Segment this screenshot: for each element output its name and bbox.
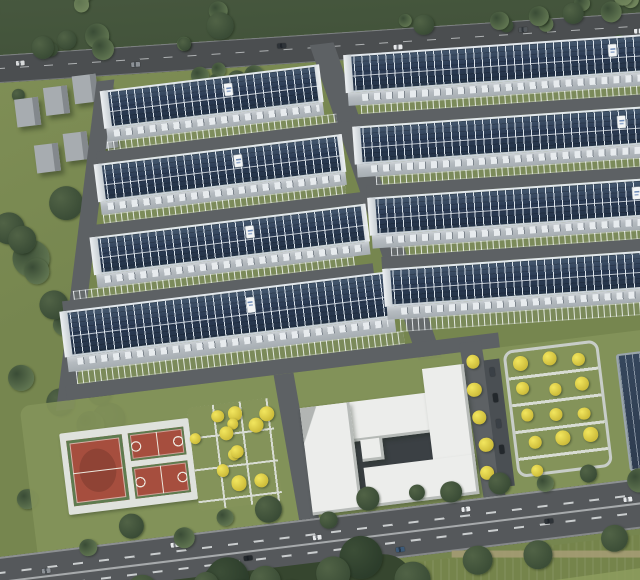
roof-label [234, 154, 243, 167]
roof-label [246, 297, 256, 313]
car [312, 535, 322, 541]
scene-world [0, 0, 640, 580]
roof-label [224, 83, 233, 96]
utility-cube [34, 143, 61, 174]
car [492, 393, 498, 403]
car [518, 27, 527, 33]
roof-label [245, 226, 254, 239]
utility-cube [14, 97, 41, 128]
west-tree [6, 364, 35, 393]
car [393, 44, 402, 50]
utility-cube [63, 131, 90, 162]
car [489, 367, 495, 377]
car [131, 62, 140, 68]
roof-label [617, 116, 626, 129]
car [496, 419, 502, 429]
office-pavilion [360, 437, 385, 462]
aerial-rendering [0, 0, 640, 580]
multipurpose-court [66, 434, 130, 506]
sports-platform [59, 418, 198, 515]
car [15, 60, 24, 66]
car [41, 568, 51, 574]
car [634, 28, 640, 34]
car [544, 518, 554, 524]
roof-label [608, 44, 617, 57]
basketball-court-2 [132, 460, 191, 499]
car [623, 496, 633, 502]
car [499, 445, 505, 455]
car [461, 506, 471, 512]
car [277, 43, 286, 49]
roof-label [632, 187, 640, 200]
car [395, 547, 405, 553]
basketball-court-1 [128, 427, 187, 462]
utility-cube [43, 85, 70, 116]
